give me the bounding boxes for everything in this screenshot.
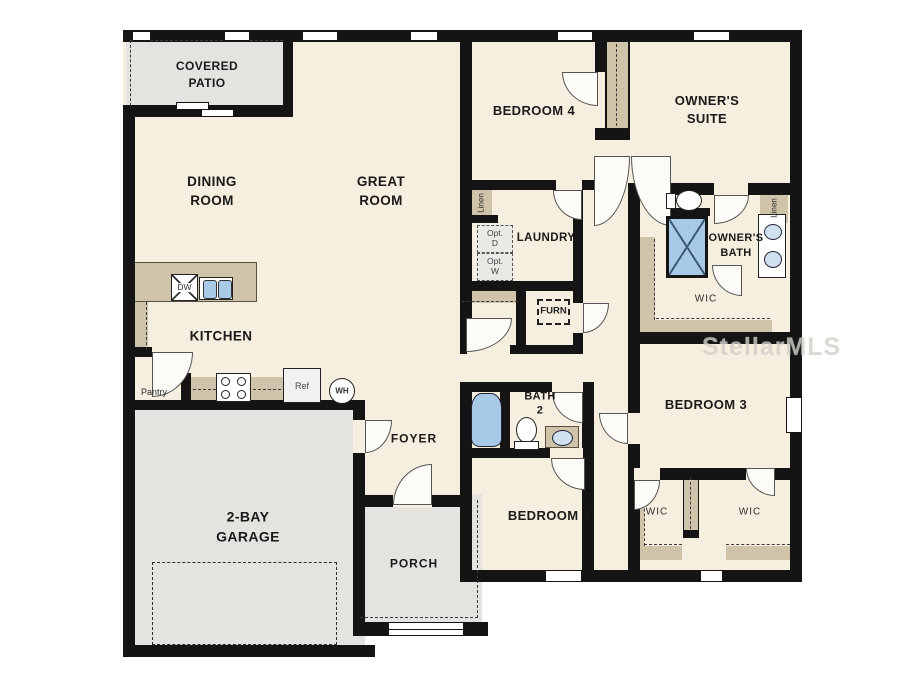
pantry-top-wall — [123, 347, 152, 357]
bath2-sink — [552, 430, 573, 446]
burner-3 — [221, 390, 230, 399]
chase-cap-wall — [595, 128, 630, 140]
room-label-foyer: FOYER — [391, 431, 437, 448]
room-label-owners-suite: OWNER'S SUITE — [675, 92, 739, 128]
door-opening-garage — [353, 420, 365, 453]
porch-edge-bottom — [360, 617, 478, 618]
owners-wic-left-wall — [628, 233, 640, 332]
exterior-wall-left — [123, 105, 135, 657]
closet-label-linen-hall: Linen — [476, 193, 485, 213]
bedroom4-suite-chase — [605, 42, 630, 128]
window-patio-corner — [132, 31, 151, 41]
stellar-mls-watermark: StellarMLS — [702, 333, 841, 362]
optional-dryer: Opt. D — [477, 225, 513, 253]
window-wic-hall — [700, 570, 723, 582]
room-label-great-room: GREAT ROOM — [357, 173, 405, 211]
bedroom4-right-wall — [595, 42, 605, 72]
optional-washer: Opt. W — [477, 253, 513, 281]
owners-wic-shelf-left — [640, 237, 655, 332]
patio-slider-panel-2 — [201, 109, 234, 117]
room-label-wic-bedroom3: WIC — [739, 506, 761, 518]
laundry-bottom-wall — [460, 281, 583, 291]
room-label-pantry: Pantry — [141, 387, 167, 397]
room-label-bedroom-4: BEDROOM 4 — [493, 102, 575, 120]
patio-edge-top — [130, 40, 283, 41]
room-label-porch: PORCH — [390, 556, 438, 573]
door-opening-furnace — [573, 303, 583, 333]
porch-corner-right — [463, 622, 488, 636]
exterior-wall-bottom-right — [460, 570, 802, 582]
burner-1 — [221, 377, 230, 386]
porch-step — [388, 622, 464, 636]
stove — [216, 373, 251, 402]
owners-vanity-sink-1 — [764, 224, 782, 240]
room-label-bedroom-3: BEDROOM 3 — [665, 396, 747, 414]
room-label-bath-2: BATH 2 — [524, 390, 555, 418]
linen-hall-cap — [468, 215, 498, 223]
chase-center-line — [616, 44, 617, 126]
wic-divider — [683, 475, 699, 533]
window-bedroom4 — [557, 31, 593, 41]
patio-edge-left — [130, 40, 131, 106]
window-great-room-1 — [302, 31, 338, 41]
room-label-dining-room: DINING ROOM — [187, 173, 237, 211]
porch-edge-right — [477, 500, 478, 618]
garage-wall-bottom — [123, 645, 375, 657]
closet-label-linen-owners-bath: Linen — [769, 198, 778, 218]
optional-washer-label: Opt. W — [487, 257, 503, 277]
owners-wic-shelf-line-h — [656, 318, 770, 319]
water-heater-label: WH — [335, 386, 348, 395]
room-label-laundry: LAUNDRY — [517, 230, 576, 246]
owners-toilet-tank — [666, 193, 676, 209]
door-opening-laundry — [556, 180, 582, 190]
refrigerator-label: Ref — [295, 380, 309, 390]
burner-4 — [237, 390, 246, 399]
room-label-owners-wic: WIC — [695, 293, 717, 305]
door-opening-bath2 — [552, 382, 583, 392]
bedroom4-laundry-wall — [460, 180, 605, 190]
dishwasher-label: DW — [176, 283, 192, 293]
room-label-kitchen: KITCHEN — [190, 328, 253, 347]
hall-closet-shelf-line — [462, 301, 518, 302]
porch-step-line — [389, 629, 463, 630]
bedroom3-left-wall — [628, 344, 640, 468]
owners-shower — [666, 216, 708, 278]
room-label-bedroom-2: BEDROOM 2 — [508, 507, 590, 525]
greatroom-bedroom4-wall — [460, 42, 472, 348]
kitchen-sink — [199, 277, 233, 300]
exterior-wall-right — [790, 30, 802, 582]
door-opening-bedroom2 — [550, 448, 583, 458]
toilet-niche-wall — [628, 195, 640, 233]
wic3-shelf-line-h — [726, 544, 790, 545]
wic2-shelf-line-h — [644, 544, 682, 545]
burner-2 — [237, 377, 246, 386]
window-bedroom3 — [786, 397, 802, 433]
window-bedroom2 — [545, 570, 582, 582]
furnace: FURN — [537, 299, 570, 325]
bath2-toilet-tank — [514, 441, 539, 450]
room-label-covered-patio: COVERED PATIO — [176, 58, 238, 92]
wic-divider-line — [690, 477, 691, 529]
optional-dryer-label: Opt. D — [487, 229, 503, 249]
owners-wic-shelf-line-v — [654, 239, 655, 320]
wic3-shelf-bottom — [726, 546, 790, 560]
floor-plan: DW Ref WH Opt. D Opt. W FURN COVERED PAT… — [0, 0, 916, 687]
water-heater: WH — [329, 378, 355, 404]
door-opening-owners-bath — [714, 183, 748, 195]
window-owners-suite — [693, 31, 730, 41]
room-label-wic-bedroom2: WIC — [646, 506, 668, 518]
window-patio — [224, 31, 250, 41]
kitchen-sink-basin-1 — [203, 280, 217, 299]
owners-toilet-bowl — [676, 190, 702, 211]
bath2-toilet-bowl — [516, 417, 537, 443]
dishwasher: DW — [171, 274, 198, 301]
owners-vanity-sink-2 — [764, 251, 782, 268]
patio-right-wall — [283, 42, 293, 117]
door-opening-bedroom3 — [628, 413, 640, 444]
door-opening-wic2 — [634, 468, 660, 480]
room-label-garage: 2-BAY GARAGE — [216, 507, 280, 546]
garage-door-outline — [152, 562, 337, 645]
porch-corner-left — [358, 622, 388, 636]
furnace-label: FURN — [540, 307, 566, 318]
kitchen-sink-basin-2 — [218, 280, 232, 299]
room-label-owners-bath: OWNER'S BATH — [709, 231, 764, 261]
window-great-room-2 — [410, 31, 438, 41]
furnace-left-wall — [516, 291, 526, 349]
left-counter-edge — [146, 302, 147, 350]
wic-divider-cap — [683, 530, 699, 538]
refrigerator: Ref — [283, 368, 321, 403]
bathtub — [471, 393, 502, 447]
